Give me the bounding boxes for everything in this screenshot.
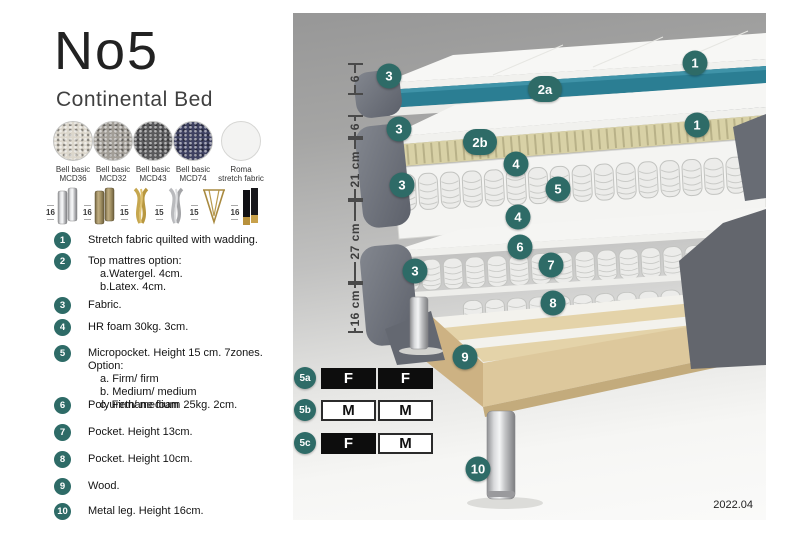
wood-cylinder-leg-icon [93,186,117,226]
spec-item-1: 1 Stretch fabric quilted with wadding. [52,234,297,247]
metal-leg-front [487,411,515,499]
spec-item-number: 3 [54,297,71,314]
spec-item-number: 1 [54,232,71,249]
callout-3-b: 3 [387,117,412,142]
firmness-row-5a: 5a F F [294,367,433,389]
chrome-cylinder-leg-icon [56,186,80,226]
firmness-cell: M [378,400,433,421]
spec-item-number: 10 [54,503,71,520]
fabric-swatch-circle [53,121,93,161]
spec-column: No5 Continental Bed Bell basicMCD36 Bell… [0,0,293,533]
spec-item-4: 4 HR foam 30kg. 3cm. [52,321,297,334]
callout-2a: 2a [528,76,562,102]
spec-item-number: 2 [54,253,71,270]
firmness-option-badge: 5a [294,367,316,389]
firmness-cell: F [321,368,376,389]
spec-item-7: 7 Pocket. Height 13cm. [52,426,297,439]
fabric-swatch-circle [221,121,261,161]
callout-2b: 2b [463,129,497,155]
callout-3-c: 3 [390,173,415,198]
fabric-swatch-mcd32: Bell basicMCD32 [93,121,133,183]
firmness-row-5c: 5c F M [294,432,433,454]
fabric-swatch-mcd74: Bell basicMCD74 [173,121,213,183]
firmness-cell: M [321,400,376,421]
metal-leg-back [410,297,428,349]
page-subtitle: Continental Bed [56,88,213,112]
spec-item-number: 7 [54,424,71,441]
spec-item-6: 6 Polyurethane foam 25kg. 2cm. [52,399,297,412]
fabric-swatches: Bell basicMCD36 Bell basicMCD32 Bell bas… [53,121,265,183]
callout-1-mid: 1 [685,113,710,138]
hairpin-leg-icon [200,186,228,226]
firmness-option-badge: 5b [294,399,316,421]
leg-option-gold-twist: 15 [120,186,152,226]
gold-twist-leg-icon [130,186,152,226]
leg-option-chrome-cylinder: 16 [46,186,80,226]
dimension-top-pad: 6 [341,115,369,138]
callout-10: 10 [466,457,491,482]
product-sheet: No5 Continental Bed Bell basicMCD36 Bell… [0,0,800,533]
spec-item-number: 9 [54,478,71,495]
callout-5: 5 [546,177,571,202]
fabric-swatch-circle [133,121,173,161]
leg-option-wood-cylinder: 16 [83,186,117,226]
callout-8: 8 [541,291,566,316]
callout-4-a: 4 [504,152,529,177]
leg-options: 16 16 15 [46,186,265,226]
fabric-swatch-roma: Romastretch fabric [217,121,265,183]
leg-option-black-brass: 16 [231,186,263,226]
spec-item-number: 4 [54,319,71,336]
dimension-main-mattress: 21 cm [341,138,369,200]
leg-option-silver-twist: 15 [155,186,187,226]
callout-7: 7 [539,253,564,278]
spec-item-8: 8 Pocket. Height 10cm. [52,453,297,466]
callout-9: 9 [453,345,478,370]
dimension-legs: 16 cm [341,283,369,333]
spec-item-number: 6 [54,397,71,414]
page-title: No5 [54,20,159,82]
spec-item-10: 10 Metal leg. Height 16cm. [52,505,297,518]
firmness-cell: F [378,368,433,389]
spec-item-3: 3 Fabric. [52,299,297,312]
firmness-row-5b: 5b M M [294,399,433,421]
firmness-cell: M [378,433,433,454]
spec-item-9: 9 Wood. [52,480,297,493]
callout-4-b: 4 [506,205,531,230]
firmness-option-badge: 5c [294,432,316,454]
callout-6: 6 [508,235,533,260]
black-brass-leg-icon [240,186,262,226]
dimension-top-mattress: 6 [341,63,369,95]
bed-diagram-panel: 6 6 21 cm 27 cm 16 cm 1 1 2a 2b 3 3 3 3 … [293,13,766,520]
callout-3-d: 3 [403,259,428,284]
fabric-swatch-circle [173,121,213,161]
spec-item-number: 5 [54,345,71,362]
silver-twist-leg-icon [165,186,187,226]
callout-1-top: 1 [683,51,708,76]
leg-foot [487,491,515,497]
fabric-swatch-circle [93,121,133,161]
fabric-swatch-mcd43: Bell basicMCD43 [133,121,173,183]
dimension-base: 27 cm [341,200,369,283]
callout-3-a: 3 [377,64,402,89]
spec-item-number: 8 [54,451,71,468]
base-divan-slab [359,207,766,509]
fabric-swatch-mcd36: Bell basicMCD36 [53,121,93,183]
spec-list: 1 Stretch fabric quilted with wadding. 2… [52,230,297,530]
leg-option-hairpin: 15 [190,186,228,226]
firmness-cell: F [321,433,376,454]
version-date: 2022.04 [713,499,753,511]
spec-item-2: 2 Top mattres option: a.Watergel. 4cm. b… [52,255,297,294]
